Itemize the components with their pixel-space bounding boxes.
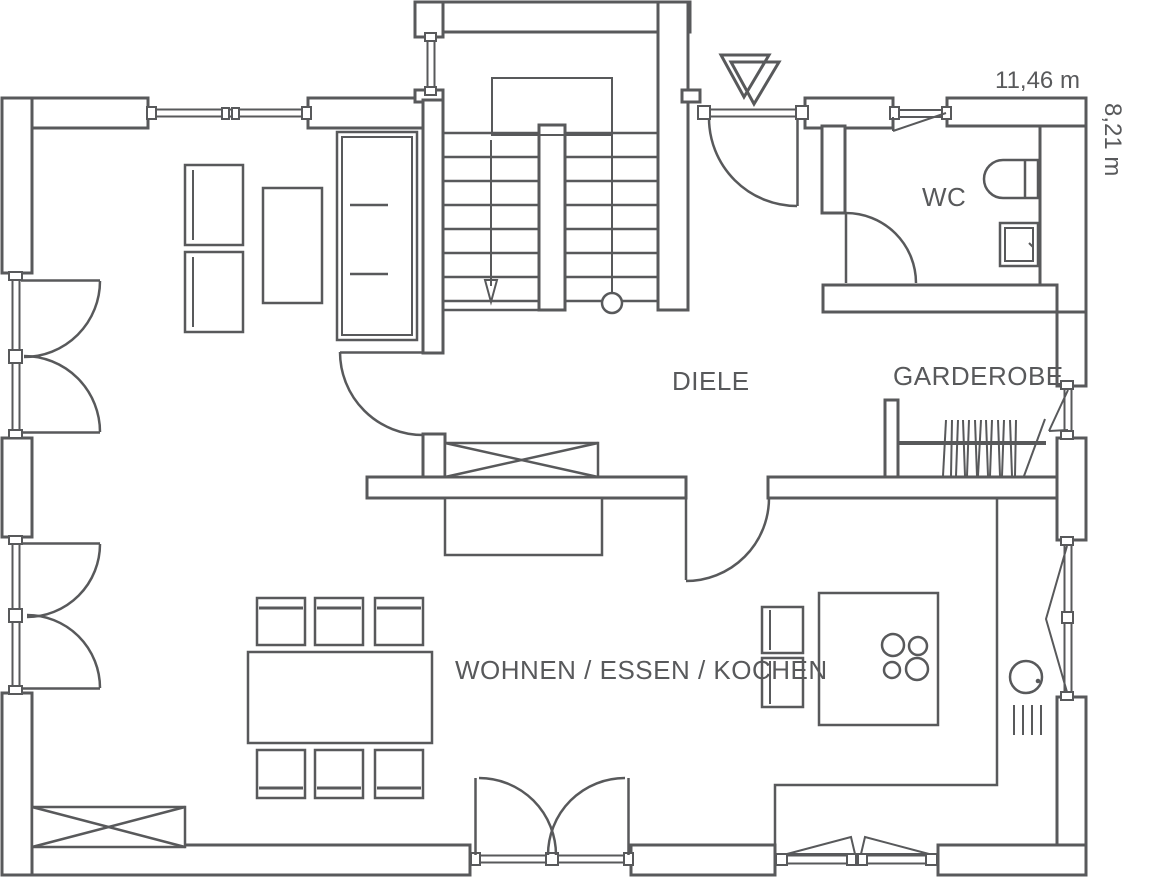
wc-bottom-wall <box>823 285 1057 312</box>
hall-door-stub <box>423 434 445 477</box>
hall-wall-right <box>768 477 1057 498</box>
hall-label: DIELE <box>672 366 750 396</box>
wall-top-entrance-right <box>805 98 893 128</box>
shaft-bottom-left <box>32 807 185 847</box>
floor-plan: WC DIELE GARDEROBE WOHNEN / ESSEN / KOCH… <box>0 0 1176 890</box>
floor-plan-drawing: WC DIELE GARDEROBE WOHNEN / ESSEN / KOCH… <box>0 0 1176 890</box>
entrance-door <box>698 106 808 206</box>
window-kitchen-right <box>1046 537 1073 700</box>
window-left-door-2-glazing <box>9 536 22 694</box>
wall-bottom-left <box>2 845 470 875</box>
wall-bottom-right <box>938 845 1086 875</box>
kitchen-stool <box>762 607 803 653</box>
window-entrance-side <box>890 107 951 131</box>
window-stair-bay <box>425 33 436 95</box>
sideboard-low <box>445 498 602 555</box>
window-kitchen-bottom <box>775 837 937 865</box>
dining-chair <box>315 598 363 645</box>
wardrobe-fittings <box>898 419 1046 476</box>
hall-living-door <box>686 498 769 581</box>
dining-chair <box>315 750 363 798</box>
wc-label: WC <box>922 182 966 212</box>
dimension-width-label: 11,46 m <box>995 67 1080 94</box>
wc-door <box>846 213 916 283</box>
wall-bottom-mid <box>631 845 775 875</box>
coffee-table <box>263 188 322 303</box>
shaft-center <box>445 443 598 477</box>
dishwasher-marks <box>1014 705 1041 735</box>
stair-bay-top-wall <box>415 2 690 32</box>
wall-top-mid <box>308 98 423 128</box>
wc-fixtures <box>984 160 1038 266</box>
wall-left-mid-pier <box>2 438 32 537</box>
wardrobe-wall-stub <box>885 400 898 477</box>
stair-newel-post <box>602 293 622 313</box>
stair-bay-left-wall-upper <box>415 2 443 37</box>
terrace-double-door <box>471 778 633 865</box>
dining-chair <box>375 598 423 645</box>
entrance-marker-icon <box>721 55 779 104</box>
entrance-wall-hook <box>682 90 700 102</box>
coat-hooks <box>943 419 1045 476</box>
window-top <box>147 107 311 119</box>
wall-right-pier-3 <box>1057 697 1086 845</box>
dining-table <box>248 652 432 743</box>
stair-divider-wall <box>539 125 565 310</box>
kitchen-island <box>819 593 938 725</box>
dining-chair <box>257 598 305 645</box>
french-door-left-upper <box>21 281 100 433</box>
hall-wall-left <box>367 477 686 498</box>
dining-furniture <box>248 598 432 798</box>
stair-hall-door <box>340 352 423 435</box>
living-label: WOHNEN / ESSEN / KOCHEN <box>455 655 828 685</box>
wall-left-lower-pier <box>2 693 32 875</box>
dimension-height-label: 8,21 m <box>1099 103 1126 176</box>
stair-left-wall <box>423 100 443 353</box>
wardrobe-label: GARDEROBE <box>893 361 1064 391</box>
window-left-door-1-glazing <box>9 272 22 438</box>
toilet <box>984 160 1038 198</box>
french-door-left-lower <box>21 544 100 689</box>
armchair-1 <box>185 165 243 245</box>
wc-left-wall <box>822 126 845 213</box>
wall-right-pier-2 <box>1057 438 1086 540</box>
wall-left-upper-pier <box>2 98 32 273</box>
armchair-2 <box>185 252 243 332</box>
washbasin <box>1000 223 1038 266</box>
dining-chair <box>257 750 305 798</box>
interior-walls <box>367 100 1057 498</box>
dining-chair <box>375 750 423 798</box>
sideboard-tall <box>337 132 417 340</box>
wall-top-right <box>947 98 1086 126</box>
stair-right-wall <box>658 2 688 310</box>
kitchen-sink <box>1010 661 1042 693</box>
